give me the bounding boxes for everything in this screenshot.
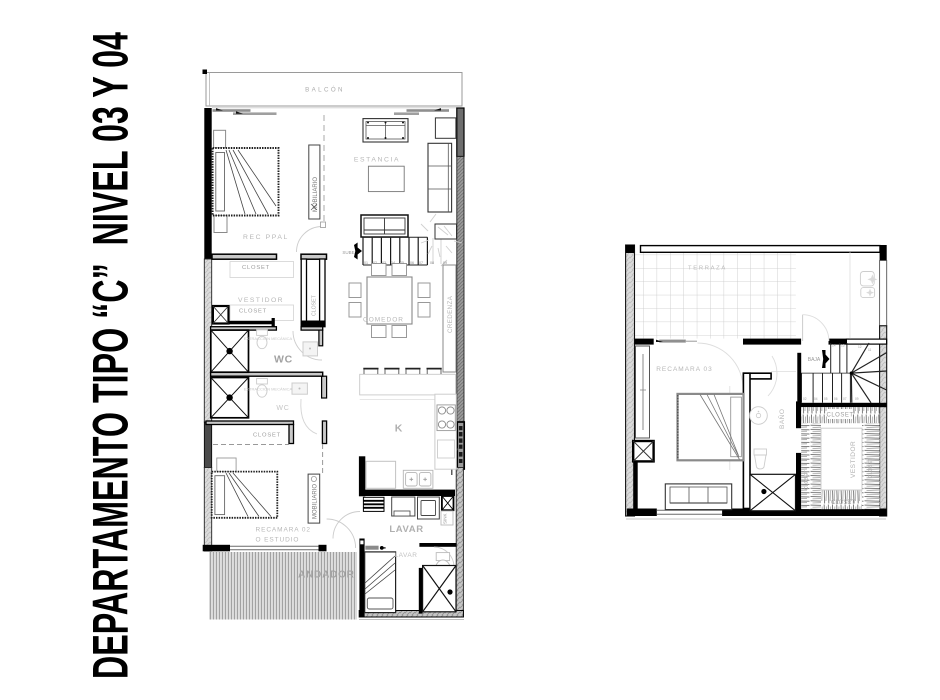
svg-text:02: 02 [803, 397, 807, 401]
svg-text:08: 08 [430, 261, 434, 265]
svg-text:06: 06 [834, 397, 838, 401]
svg-text:06: 06 [410, 261, 414, 265]
svg-text:CLOSET: CLOSET [242, 265, 270, 271]
svg-text:14: 14 [832, 344, 836, 348]
svg-text:09: 09 [855, 397, 859, 401]
svg-text:MOBILIARIO: MOBILIARIO [312, 484, 318, 519]
svg-text:REC PPAL: REC PPAL [243, 234, 289, 241]
svg-text:WC: WC [276, 405, 289, 412]
svg-text:LAVAR: LAVAR [389, 524, 423, 535]
svg-text:SINK: SINK [443, 513, 448, 524]
svg-text:TERRAZA: TERRAZA [688, 266, 727, 272]
svg-text:05: 05 [400, 261, 404, 265]
svg-text:13: 13 [841, 344, 845, 348]
svg-text:EXTRACCIÓN MECÁNICA: EXTRACCIÓN MECÁNICA [244, 336, 293, 341]
svg-text:WC: WC [274, 354, 293, 366]
svg-text:02: 02 [373, 261, 377, 265]
svg-text:CLOSET: CLOSET [826, 413, 853, 419]
svg-text:VESTIDOR: VESTIDOR [238, 297, 284, 304]
svg-text:RECAMARA 03: RECAMARA 03 [656, 366, 713, 373]
svg-text:CLOSET: CLOSET [831, 500, 855, 506]
svg-text:11: 11 [868, 348, 872, 352]
svg-text:05: 05 [824, 397, 828, 401]
svg-text:DEPARTAMENTO TIPO “C” NIVEL 0: DEPARTAMENTO TIPO “C” NIVEL 03 Y 04 [83, 32, 139, 679]
svg-text:SUBE: SUBE [342, 250, 354, 255]
svg-text:CLOSET: CLOSET [312, 294, 318, 316]
svg-text:ANDADOR: ANDADOR [298, 570, 355, 581]
svg-text:VESTIDOR: VESTIDOR [850, 441, 857, 478]
svg-text:COMEDOR: COMEDOR [363, 317, 404, 324]
svg-text:CLOSET: CLOSET [868, 458, 874, 478]
svg-text:ESTANCIA: ESTANCIA [354, 157, 400, 164]
svg-text:BAJA: BAJA [808, 357, 821, 363]
svg-text:K: K [395, 423, 403, 435]
svg-text:EXTRACCIÓN MECÁNICA: EXTRACCIÓN MECÁNICA [244, 387, 293, 392]
svg-text:03: 03 [382, 261, 386, 265]
svg-text:CLOSET: CLOSET [253, 433, 281, 439]
svg-text:07: 07 [843, 397, 847, 401]
svg-text:BALCÓN: BALCÓN [305, 87, 345, 94]
svg-text:07: 07 [419, 261, 423, 265]
svg-text:O ESTUDIO: O ESTUDIO [256, 537, 300, 544]
svg-text:01: 01 [364, 261, 368, 265]
svg-text:09: 09 [443, 261, 447, 265]
svg-text:RECAMARA 02: RECAMARA 02 [256, 527, 311, 534]
svg-text:04: 04 [814, 397, 818, 401]
svg-text:CLOSET: CLOSET [804, 470, 810, 490]
svg-text:12: 12 [858, 345, 862, 349]
svg-text:CLOSET: CLOSET [239, 309, 267, 315]
svg-text:LAVAR: LAVAR [395, 552, 418, 559]
svg-text:BAÑO: BAÑO [777, 409, 786, 429]
svg-text:CREDENZA: CREDENZA [447, 295, 454, 333]
svg-text:04: 04 [391, 261, 395, 265]
